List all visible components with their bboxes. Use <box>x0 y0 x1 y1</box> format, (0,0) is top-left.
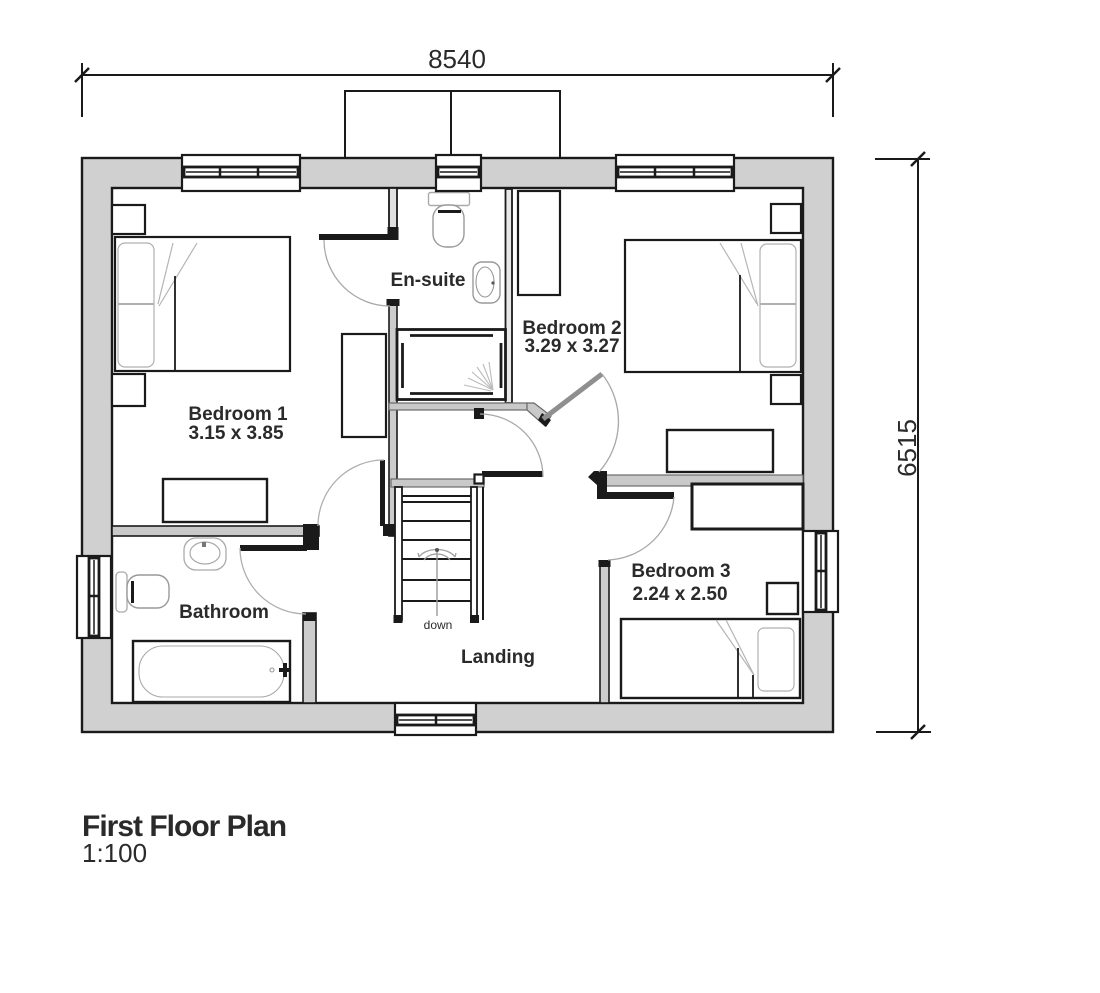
svg-text:Bathroom: Bathroom <box>179 602 269 623</box>
svg-text:6515: 6515 <box>892 419 922 477</box>
svg-text:Bedroom 1: Bedroom 1 <box>188 404 288 425</box>
svg-text:En-suite: En-suite <box>391 270 466 291</box>
svg-text:2.24 x 2.50: 2.24 x 2.50 <box>632 584 727 605</box>
svg-text:3.29 x 3.27: 3.29 x 3.27 <box>524 336 619 357</box>
svg-text:down: down <box>424 618 453 632</box>
svg-text:3.15 x 3.85: 3.15 x 3.85 <box>188 423 284 444</box>
svg-text:Landing: Landing <box>461 647 535 668</box>
svg-text:Bedroom 3: Bedroom 3 <box>631 561 730 582</box>
svg-text:1:100: 1:100 <box>82 838 147 868</box>
svg-text:8540: 8540 <box>428 44 486 74</box>
